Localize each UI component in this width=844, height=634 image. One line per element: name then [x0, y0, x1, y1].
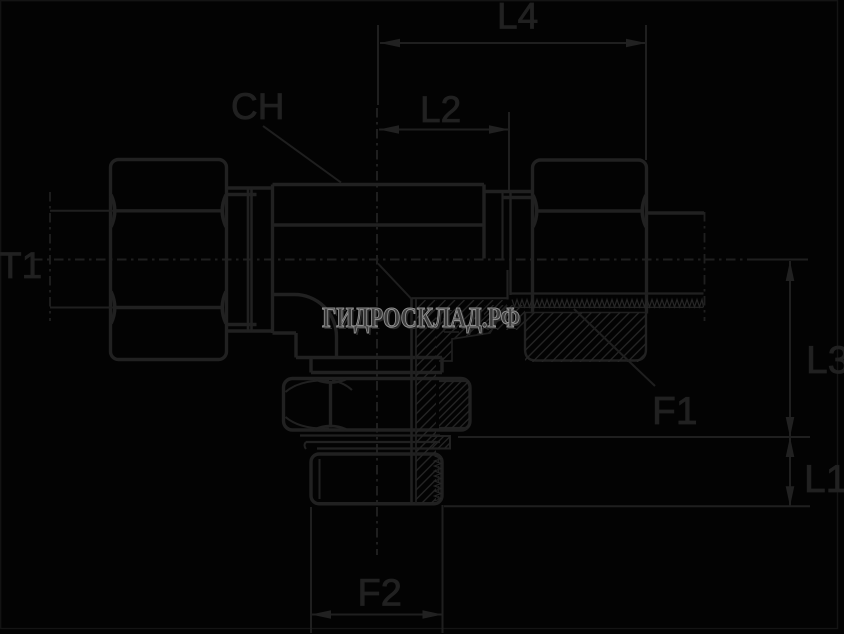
svg-text:L4: L4 [497, 0, 538, 37]
svg-text:L2: L2 [420, 89, 461, 130]
svg-text:F1: F1 [652, 390, 698, 433]
svg-text:ГИДРОСКЛАД.РФ: ГИДРОСКЛАД.РФ [322, 303, 520, 334]
svg-text:L1: L1 [804, 458, 844, 501]
svg-text:CH: CH [231, 86, 284, 127]
svg-text:T1: T1 [0, 245, 42, 286]
svg-text:L3: L3 [806, 339, 844, 382]
svg-text:F2: F2 [358, 573, 402, 615]
